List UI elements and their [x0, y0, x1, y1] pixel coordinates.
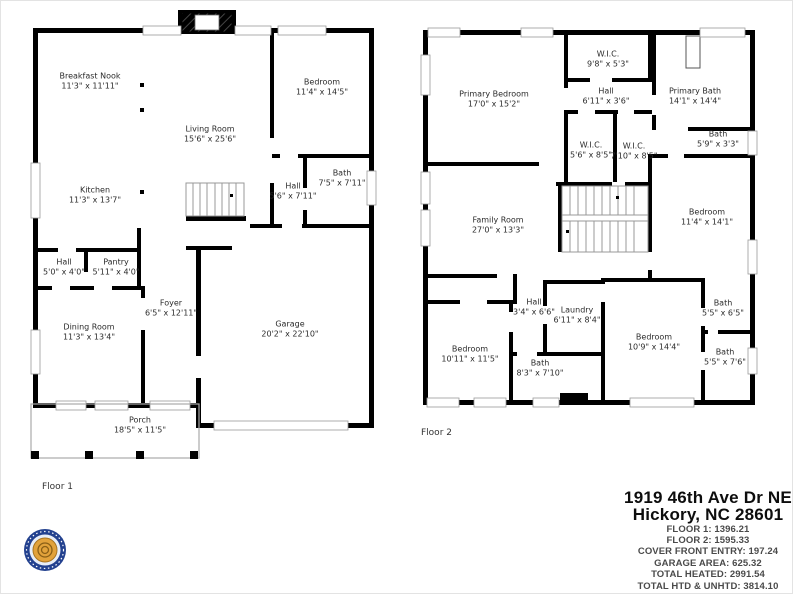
room-name: Primary Bath — [669, 87, 721, 97]
room-name: Pantry — [92, 258, 139, 268]
room-dims: 11'4" x 14'5" — [296, 88, 348, 98]
floor1-room-bath: Bath 7'5" x 7'11" — [318, 169, 365, 190]
room-dims: 20'2" x 22'10" — [261, 330, 318, 340]
room-name: Porch — [114, 416, 166, 426]
company-badge-logo-icon — [21, 526, 69, 574]
floor2-room-bedroom-right: Bedroom 11'4" x 14'1" — [681, 208, 733, 229]
room-name: Dining Room — [63, 323, 115, 333]
address-line1: 1919 46th Ave Dr NE — [593, 489, 793, 506]
floor1-room-porch: Porch 18'5" x 11'5" — [114, 416, 166, 437]
room-name: Bath — [704, 348, 746, 358]
floor2-room-laundry: Laundry 6'11" x 8'4" — [553, 306, 600, 327]
floor2-label: Floor 2 — [421, 428, 452, 438]
floor2-room-wic-right: W.I.C. 7'10" x 8'5" — [610, 142, 657, 163]
room-name: Hall — [43, 258, 85, 268]
room-name: Hall — [513, 298, 555, 308]
room-dims: 5'11" x 4'0" — [92, 268, 139, 278]
room-dims: 9'8" x 5'3" — [587, 60, 629, 70]
room-name: Living Room — [184, 125, 236, 135]
floor1-room-dining-room: Dining Room 11'3" x 13'4" — [63, 323, 115, 344]
floor1-room-bedroom: Bedroom 11'4" x 14'5" — [296, 78, 348, 99]
room-name: Bedroom — [628, 333, 680, 343]
room-dims: 17'0" x 15'2" — [459, 100, 529, 110]
floor2-room-bath-right-lower: Bath 5'5" x 7'6" — [704, 348, 746, 369]
room-dims: 6'11" x 8'4" — [553, 316, 600, 326]
room-dims: 5'5" x 6'5" — [702, 309, 744, 319]
floor1-room-garage: Garage 20'2" x 22'10" — [261, 320, 318, 341]
floor1-label: Floor 1 — [42, 482, 73, 492]
summary-total-heated: TOTAL HEATED: 2991.54 — [593, 569, 793, 580]
fireplace — [178, 10, 236, 34]
room-name: Bedroom — [296, 78, 348, 88]
summary-cover-front-entry: COVER FRONT ENTRY: 197.24 — [593, 546, 793, 557]
floor2-room-primary-bath: Primary Bath 14'1" x 14'4" — [669, 87, 721, 108]
floorplan-page: Breakfast Nook 11'3" x 11'11" Living Roo… — [0, 0, 793, 594]
room-dims: 5'5" x 7'6" — [704, 358, 746, 368]
room-name: W.I.C. — [570, 141, 612, 151]
room-dims: 11'3" x 11'11" — [59, 82, 120, 92]
floor2-room-hall-upper: Hall 6'11" x 3'6" — [582, 87, 629, 108]
floor1-room-hall-lower: Hall 5'0" x 4'0" — [43, 258, 85, 279]
address-line2: Hickory, NC 28601 — [593, 506, 793, 523]
floor2-room-bedroom-bottom: Bedroom 10'9" x 14'4" — [628, 333, 680, 354]
floor2-room-family-room: Family Room 27'0" x 13'3" — [472, 216, 524, 237]
room-name: Bedroom — [681, 208, 733, 218]
summary-garage-area: GARAGE AREA: 625.32 — [593, 558, 793, 569]
summary-floor1-area: FLOOR 1: 1396.21 — [593, 524, 793, 535]
room-name: Bath — [516, 359, 563, 369]
floor2-room-hall-lower: Hall 3'4" x 6'6" — [513, 298, 555, 319]
floor1-room-living-room: Living Room 15'6" x 25'6" — [184, 125, 236, 146]
floor1-room-hall-upper: Hall 5'6" x 7'11" — [269, 182, 316, 203]
room-dims: 6'11" x 3'6" — [582, 97, 629, 107]
room-dims: 10'9" x 14'4" — [628, 343, 680, 353]
area-summary: 1919 46th Ave Dr NE Hickory, NC 28601 FL… — [593, 489, 793, 592]
room-name: Bath — [702, 299, 744, 309]
room-name: Hall — [582, 87, 629, 97]
room-name: Bath — [697, 130, 739, 140]
room-dims: 3'4" x 6'6" — [513, 308, 555, 318]
floor2-room-bath-center: Bath 8'3" x 7'10" — [516, 359, 563, 380]
room-name: Garage — [261, 320, 318, 330]
room-dims: 10'11" x 11'5" — [441, 355, 498, 365]
room-name: Bath — [318, 169, 365, 179]
floor1-room-pantry: Pantry 5'11" x 4'0" — [92, 258, 139, 279]
room-dims: 5'6" x 7'11" — [269, 192, 316, 202]
floor2-chimney — [686, 36, 700, 68]
room-name: Breakfast Nook — [59, 72, 120, 82]
room-name: Foyer — [145, 299, 197, 309]
room-dims: 11'3" x 13'7" — [69, 196, 121, 206]
room-dims: 5'0" x 4'0" — [43, 268, 85, 278]
room-name: Family Room — [472, 216, 524, 226]
room-name: Bedroom — [441, 345, 498, 355]
floor1-room-kitchen: Kitchen 11'3" x 13'7" — [69, 186, 121, 207]
room-dims: 27'0" x 13'3" — [472, 226, 524, 236]
summary-total-htd-unhtd: TOTAL HTD & UNHTD: 3814.10 — [593, 581, 793, 592]
room-name: Laundry — [553, 306, 600, 316]
room-dims: 15'6" x 25'6" — [184, 135, 236, 145]
room-name: Hall — [269, 182, 316, 192]
room-name: Primary Bedroom — [459, 90, 529, 100]
room-name: W.I.C. — [587, 50, 629, 60]
room-dims: 5'9" x 3'3" — [697, 140, 739, 150]
room-dims: 7'10" x 8'5" — [610, 152, 657, 162]
room-dims: 8'3" x 7'10" — [516, 369, 563, 379]
room-dims: 18'5" x 11'5" — [114, 426, 166, 436]
floor2-room-wic-top: W.I.C. 9'8" x 5'3" — [587, 50, 629, 71]
floor2-room-bedroom-left: Bedroom 10'11" x 11'5" — [441, 345, 498, 366]
floor2-stairs — [562, 186, 648, 252]
room-name: Kitchen — [69, 186, 121, 196]
floor1-room-breakfast-nook: Breakfast Nook 11'3" x 11'11" — [59, 72, 120, 93]
room-dims: 11'3" x 13'4" — [63, 333, 115, 343]
floor2-room-bath-right-upper: Bath 5'5" x 6'5" — [702, 299, 744, 320]
room-dims: 11'4" x 14'1" — [681, 218, 733, 228]
room-dims: 7'5" x 7'11" — [318, 179, 365, 189]
room-dims: 5'6" x 8'5" — [570, 151, 612, 161]
summary-floor2-area: FLOOR 2: 1595.33 — [593, 535, 793, 546]
floor2-room-wic-left: W.I.C. 5'6" x 8'5" — [570, 141, 612, 162]
room-dims: 14'1" x 14'4" — [669, 97, 721, 107]
room-dims: 6'5" x 12'11" — [145, 309, 197, 319]
floor1-stairs — [186, 183, 244, 216]
floor2-room-primary-bedroom: Primary Bedroom 17'0" x 15'2" — [459, 90, 529, 111]
room-name: W.I.C. — [610, 142, 657, 152]
floor2-room-bath-small: Bath 5'9" x 3'3" — [697, 130, 739, 151]
floor1-room-foyer: Foyer 6'5" x 12'11" — [145, 299, 197, 320]
